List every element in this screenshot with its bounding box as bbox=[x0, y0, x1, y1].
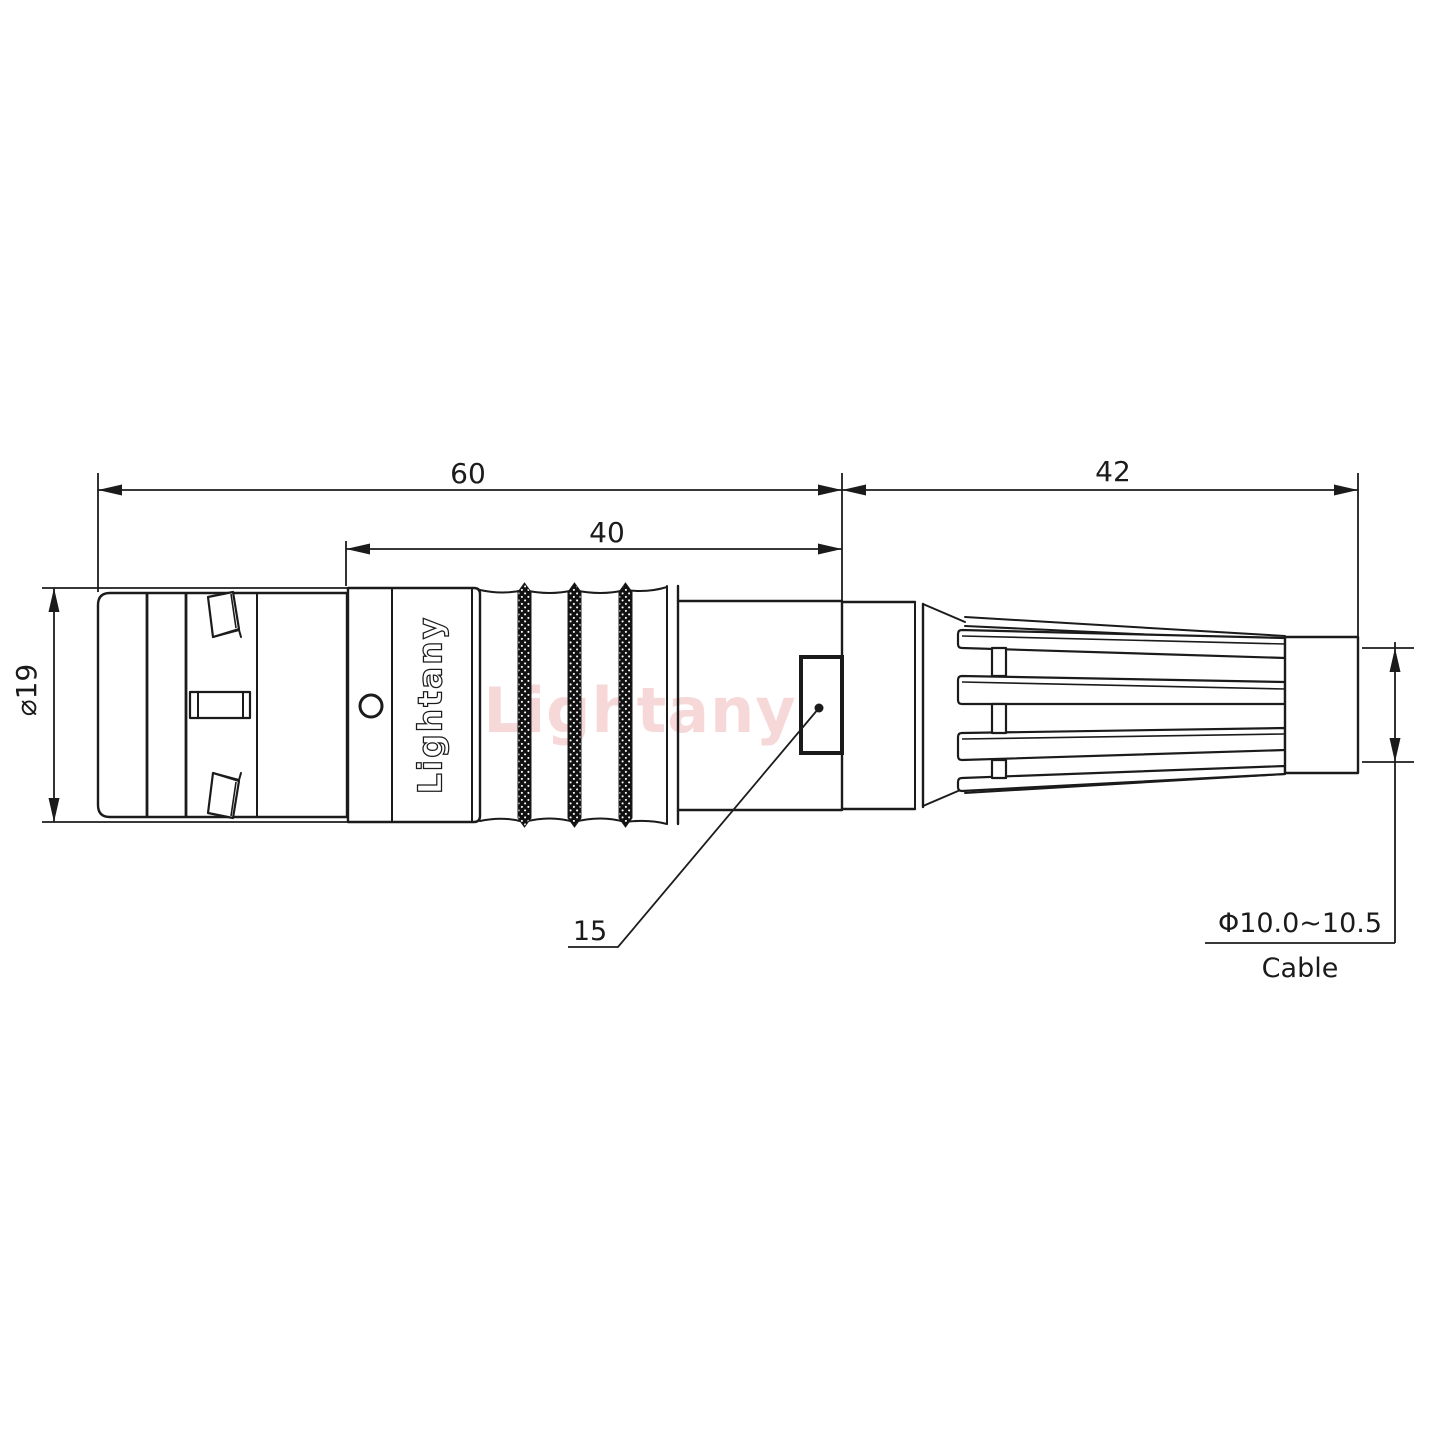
dim-42-label: 42 bbox=[1095, 455, 1131, 488]
knurl-band bbox=[568, 583, 581, 827]
dim-60-label: 60 bbox=[450, 457, 486, 490]
brand-engraving: Lightany bbox=[411, 616, 450, 795]
leader-15-label: 15 bbox=[573, 916, 607, 947]
dim-dia19-label: ⌀19 bbox=[10, 664, 43, 717]
vent-hole bbox=[360, 695, 382, 717]
dimension-overall-length: 60 bbox=[98, 457, 842, 592]
technical-drawing-page: Lightany Lightany bbox=[0, 0, 1440, 1440]
cable-range-label: Φ10.0~10.5 bbox=[1218, 908, 1382, 939]
connector-technical-drawing: Lightany Lightany bbox=[0, 0, 1440, 1440]
dim-40-label: 40 bbox=[589, 516, 625, 549]
strain-relief-boot bbox=[923, 604, 1358, 806]
knurl-band bbox=[619, 583, 632, 827]
cable-label: Cable bbox=[1262, 953, 1339, 984]
dimension-body-length: 40 bbox=[346, 516, 842, 586]
cable-exit-ferrule bbox=[1285, 637, 1358, 773]
knurl-band bbox=[518, 583, 531, 827]
